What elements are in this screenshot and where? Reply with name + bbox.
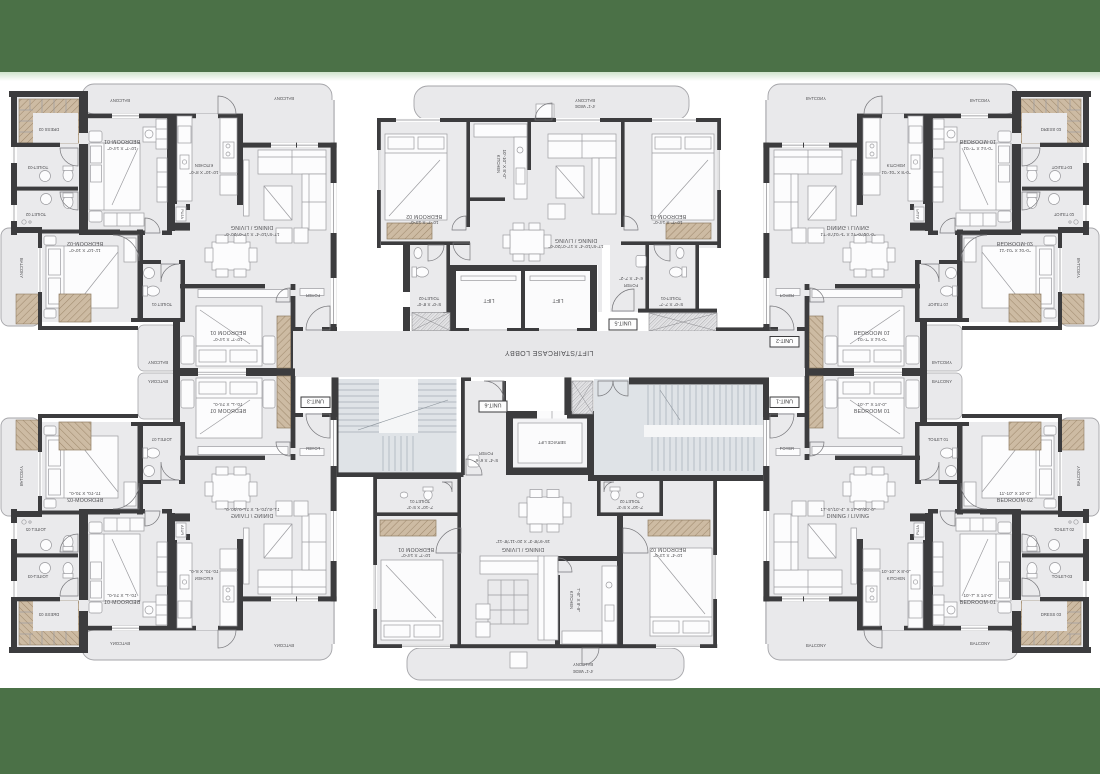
svg-text:SERVICE LIFT: SERVICE LIFT xyxy=(538,440,567,445)
svg-text:10'-10" X 8'-0": 10'-10" X 8'-0" xyxy=(189,170,218,175)
svg-text:LIFT: LIFT xyxy=(552,297,564,303)
svg-text:LIFT/STAIRCASE LOBBY: LIFT/STAIRCASE LOBBY xyxy=(505,349,594,356)
svg-text:BEDROOM 01: BEDROOM 01 xyxy=(210,329,246,335)
svg-text:10'-10" X 8'-0": 10'-10" X 8'-0" xyxy=(502,149,507,178)
svg-text:BEDROOM 01: BEDROOM 01 xyxy=(398,546,434,552)
svg-text:DINING / LIVING: DINING / LIVING xyxy=(555,237,598,243)
svg-text:10'-7" X 14'-0": 10'-7" X 14'-0" xyxy=(213,337,242,342)
svg-text:UNIT-6: UNIT-6 xyxy=(484,402,501,408)
svg-text:10'-7" X 14'-0": 10'-7" X 14'-0" xyxy=(653,220,682,225)
svg-text:7'-8" X 9'-9": 7'-8" X 9'-9" xyxy=(576,588,581,612)
svg-text:UNIT-1: UNIT-1 xyxy=(776,397,793,403)
svg-text:4'-1" WIDE: 4'-1" WIDE xyxy=(573,669,594,674)
svg-text:10'-7" X 14'-0": 10'-7" X 14'-0" xyxy=(107,146,136,151)
svg-text:BEDROOM-02: BEDROOM-02 xyxy=(67,240,103,246)
svg-text:KITCHEN: KITCHEN xyxy=(496,155,501,173)
svg-text:UNIT-3: UNIT-3 xyxy=(307,397,324,403)
svg-text:KITCHEN: KITCHEN xyxy=(569,591,574,609)
svg-text:10'-4" X 13'-0": 10'-4" X 13'-0" xyxy=(653,553,682,558)
svg-text:BALCONY: BALCONY xyxy=(19,258,24,278)
svg-text:FOYER: FOYER xyxy=(306,293,320,298)
svg-text:BEDROOM-01: BEDROOM-01 xyxy=(650,213,686,219)
svg-text:BALCONY: BALCONY xyxy=(110,98,130,103)
svg-text:DINING / LIVING: DINING / LIVING xyxy=(231,224,274,230)
svg-text:UNIT-2: UNIT-2 xyxy=(776,337,793,343)
svg-text:10'-7" X 13'-0": 10'-7" X 13'-0" xyxy=(409,220,438,225)
svg-text:5'-0" X 7'-7": 5'-0" X 7'-7" xyxy=(659,302,683,307)
svg-text:5'-0" X 8'-0": 5'-0" X 8'-0" xyxy=(417,302,441,307)
svg-text:FOYER: FOYER xyxy=(624,283,638,288)
svg-text:11'-10" X 10'-0": 11'-10" X 10'-0" xyxy=(69,248,101,253)
svg-text:KITCHEN: KITCHEN xyxy=(195,163,213,168)
svg-text:17'-5"/10'-4" X 17'-0"/20'-0": 17'-5"/10'-4" X 17'-0"/20'-0" xyxy=(548,244,603,249)
svg-text:6'-4" X 7'-2": 6'-4" X 7'-2" xyxy=(619,276,643,281)
svg-text:BALCONY: BALCONY xyxy=(575,98,595,103)
svg-text:5'-4" X 6'-6": 5'-4" X 6'-6" xyxy=(474,458,498,463)
svg-text:10'-7" X 14'-0": 10'-7" X 14'-0" xyxy=(401,553,430,558)
svg-text:DRESS 03: DRESS 03 xyxy=(38,127,59,132)
svg-text:BEDROOM 02: BEDROOM 02 xyxy=(406,213,442,219)
svg-text:TOILET 02: TOILET 02 xyxy=(619,499,640,504)
svg-text:BEDROOM-01: BEDROOM-01 xyxy=(104,138,140,144)
svg-text:17'-5"/10'-4" X 17'-0"/20'-0": 17'-5"/10'-4" X 17'-0"/20'-0" xyxy=(224,232,279,237)
svg-text:BEDROOM 02: BEDROOM 02 xyxy=(650,546,686,552)
svg-text:PUJA: PUJA xyxy=(180,209,184,219)
svg-text:BALCONY: BALCONY xyxy=(148,360,168,365)
svg-text:15'-9"/8'-3" X 20'-11"/8'-11": 15'-9"/8'-3" X 20'-11"/8'-11" xyxy=(495,539,550,544)
svg-text:TOILET-03: TOILET-03 xyxy=(27,165,48,170)
svg-text:DINING / LIVING: DINING / LIVING xyxy=(502,546,545,552)
svg-text:TOILET 01: TOILET 01 xyxy=(409,499,430,504)
svg-text:TOILET 01: TOILET 01 xyxy=(151,302,172,307)
svg-text:FOYER: FOYER xyxy=(479,451,493,456)
svg-text:UNIT-5: UNIT-5 xyxy=(614,320,631,326)
svg-text:TOILET-01: TOILET-01 xyxy=(660,296,681,301)
svg-text:TOILET-02: TOILET-02 xyxy=(418,296,439,301)
svg-text:7'-10" X 5'-3": 7'-10" X 5'-3" xyxy=(616,505,643,510)
svg-text:7'-10" X 5'-3": 7'-10" X 5'-3" xyxy=(406,505,433,510)
svg-text:LIFT: LIFT xyxy=(483,297,495,303)
svg-text:4'-1" WIDE: 4'-1" WIDE xyxy=(575,104,596,109)
svg-text:TOILET 02: TOILET 02 xyxy=(25,212,46,217)
svg-text:BALCONY: BALCONY xyxy=(274,96,294,101)
